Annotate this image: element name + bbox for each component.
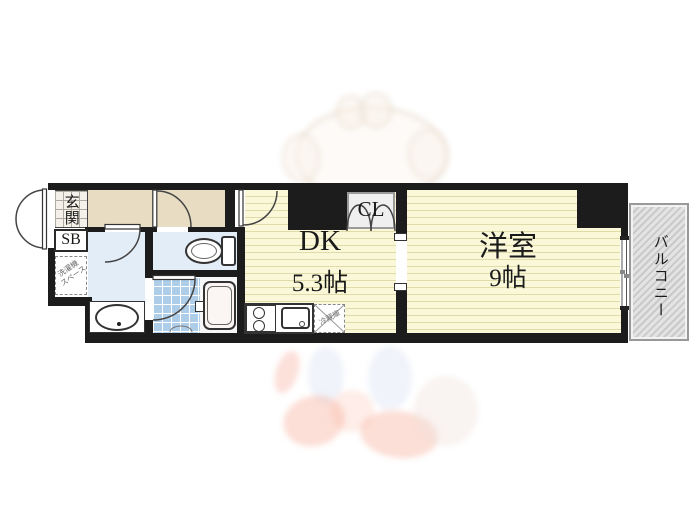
door-swing-arcs (0, 0, 700, 525)
washroom-door-leaf (105, 225, 140, 230)
toilet-door-arc (157, 191, 191, 227)
dk-door-arc (243, 191, 277, 225)
entrance-door-arc (16, 190, 45, 248)
shoe-box-label: SB (54, 232, 88, 249)
balcony-label: バルコニー (651, 224, 667, 329)
bath-door-arc (153, 280, 195, 321)
washroom-door-arc (105, 229, 140, 262)
bath-door-leaf (153, 276, 195, 280)
window-icon (620, 236, 629, 310)
toilet-door-leaf (153, 190, 157, 227)
entrance-door-leaf (43, 189, 47, 249)
dk-door-leaf (239, 190, 243, 226)
floor-plan: 玄関 SB 洗濯機 スペース DK 5.3帖 CL 洋室 9帖 バルコニー 冷蔵… (0, 0, 700, 525)
western-room-label: 洋室 (458, 232, 558, 262)
dk-size-label: 5.3帖 (270, 271, 370, 297)
dk-label: DK (270, 226, 370, 256)
entrance-label: 玄関 (62, 192, 78, 228)
closet-label: CL (347, 198, 395, 220)
bath-step-arc (170, 326, 192, 332)
western-room-size-label: 9帖 (458, 266, 558, 292)
